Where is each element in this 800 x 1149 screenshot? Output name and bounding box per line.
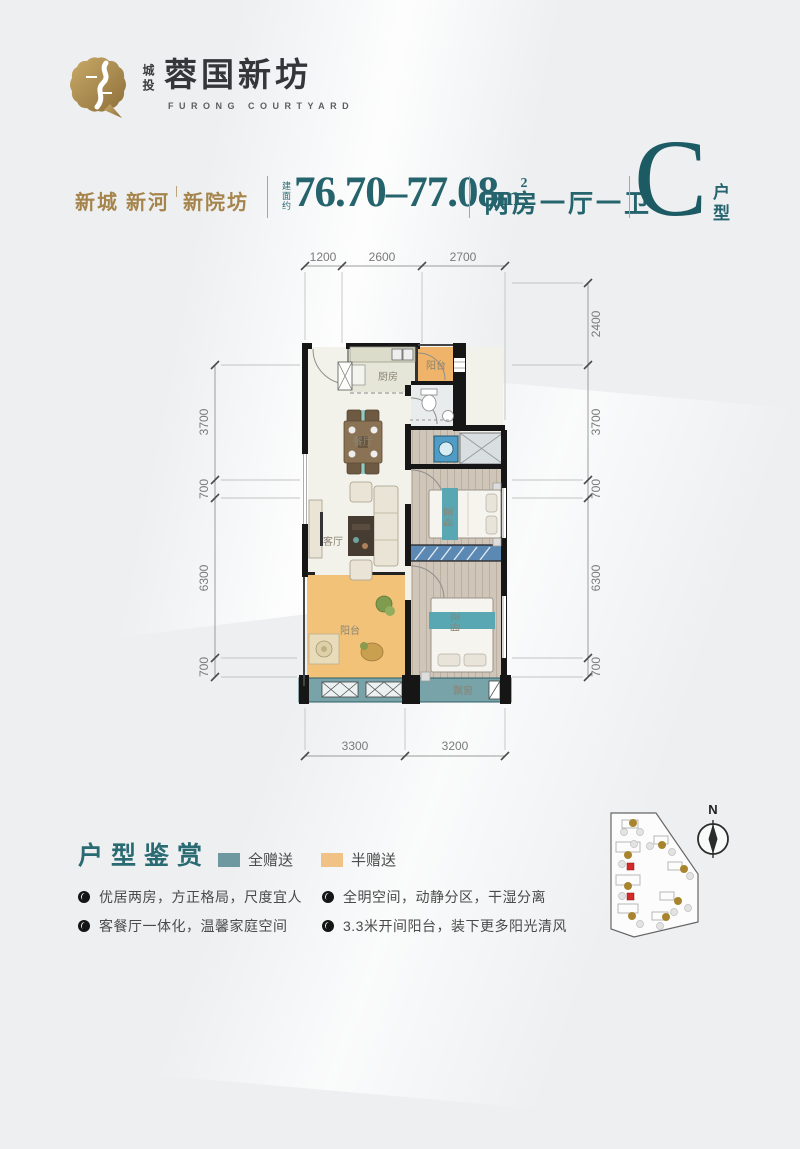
dim-label: 3200 [442, 739, 469, 753]
area-prefix-label: 建面约 [281, 181, 291, 218]
location-tick-divider [176, 186, 177, 197]
floorplan-poster: { "colors": { "teal": "#26646e", "teal_d… [0, 0, 800, 993]
compass: N [698, 802, 728, 858]
room-label-balcony-bottom: 阳台 [340, 624, 360, 637]
dim-label: 6300 [197, 564, 211, 591]
dim-label: 700 [589, 479, 603, 499]
feature-item: 客餐厅一体化，温馨家庭空间 [78, 911, 322, 940]
brand-logo: 城投 蓉国新坊 FURONG COURTYARD [70, 54, 354, 124]
room-label-dining: 餐厅 [353, 435, 373, 448]
brand-name-small: 城投 [140, 64, 157, 110]
dining-area: 餐厅 [344, 410, 382, 474]
unit-type-suffix: 户型 [707, 183, 732, 225]
dim-label: 6300 [589, 564, 603, 591]
dim-label: 3700 [197, 408, 211, 435]
location-part-b: 新院坊 [183, 192, 249, 214]
feature-text: 优居两房，方正格局，尺度宜人 [99, 887, 302, 907]
room-label-balcony-top: 阳台 [426, 359, 446, 372]
dim-label: 2400 [589, 310, 603, 337]
room-layout-text: 两房一厅一卫 [484, 184, 652, 220]
dim-label: 2700 [450, 250, 477, 264]
brand-name: 蓉国新坊 [164, 54, 354, 98]
feature-text: 客餐厅一体化，温馨家庭空间 [99, 916, 288, 936]
bedroom-1: 卧室 [429, 483, 501, 546]
legend-swatch-full-gift [218, 853, 240, 867]
feature-item: 优居两房，方正格局，尺度宜人 [78, 882, 322, 911]
bullet-seal-icon [322, 920, 334, 932]
dim-label: 700 [197, 657, 211, 677]
feature-list: 优居两房，方正格局，尺度宜人 客餐厅一体化，温馨家庭空间 全明空间，动静分区，干… [78, 882, 567, 940]
room-label-bay-window: 飘窗 [453, 684, 473, 697]
legend-swatch-half-gift [321, 853, 343, 867]
dim-label: 2600 [369, 250, 396, 264]
bullet-seal-icon [322, 891, 334, 903]
header-divider [267, 176, 268, 218]
dim-label: 700 [197, 479, 211, 499]
dim-left: 3700 700 6300 700 [197, 361, 300, 681]
dim-label: 700 [589, 657, 603, 677]
gift-legend: 全赠送 半赠送 [218, 849, 396, 870]
bullet-seal-icon [78, 920, 90, 932]
room-label-bedroom-2: 卧室 [449, 612, 462, 632]
location-slogan: 新城 新河新院坊 [75, 186, 249, 215]
bullet-seal-icon [78, 891, 90, 903]
header-divider [469, 176, 470, 218]
legend-label-half-gift: 半赠送 [351, 849, 396, 870]
legend-label-full-gift: 全赠送 [248, 849, 293, 870]
site-plan: N [593, 793, 763, 953]
highlighted-unit-marker [627, 893, 634, 900]
room-label-kitchen: 厨房 [378, 370, 398, 383]
gift-window-strip [411, 545, 503, 561]
dim-label: 3300 [342, 739, 369, 753]
brand-name-en: FURONG COURTYARD [168, 101, 354, 111]
dim-label: 1200 [310, 250, 337, 264]
floor-plan: 1200 2600 2700 3700 700 6300 700 2400 37… [185, 245, 615, 770]
feature-text: 3.3米开间阳台，装下更多阳光清风 [343, 916, 567, 936]
location-part-a: 新城 新河 [75, 192, 170, 214]
header-divider [629, 176, 630, 218]
highlighted-unit-marker [627, 863, 634, 870]
section-title: 户型鉴赏 [78, 836, 210, 872]
room-label-bedroom-1: 卧室 [442, 507, 455, 527]
unit-type-letter: C [634, 130, 707, 226]
bay-window-strip-full-gift: 飘窗 [299, 675, 511, 704]
dim-right: 2400 3700 700 6300 700 [512, 279, 603, 681]
compass-north-label: N [708, 802, 717, 817]
feature-item: 3.3米开间阳台，装下更多阳光清风 [322, 911, 567, 940]
feature-text: 全明空间，动静分区，干湿分离 [343, 887, 546, 907]
room-label-living: 客厅 [323, 535, 343, 548]
feature-item: 全明空间，动静分区，干湿分离 [322, 882, 567, 911]
dim-bottom: 3300 3200 [301, 708, 509, 760]
bedroom-2: 卧室 [421, 598, 495, 681]
seal-logo-icon [70, 54, 126, 124]
dim-label: 3700 [589, 408, 603, 435]
area-value: 76.70–77.08 [294, 168, 498, 218]
